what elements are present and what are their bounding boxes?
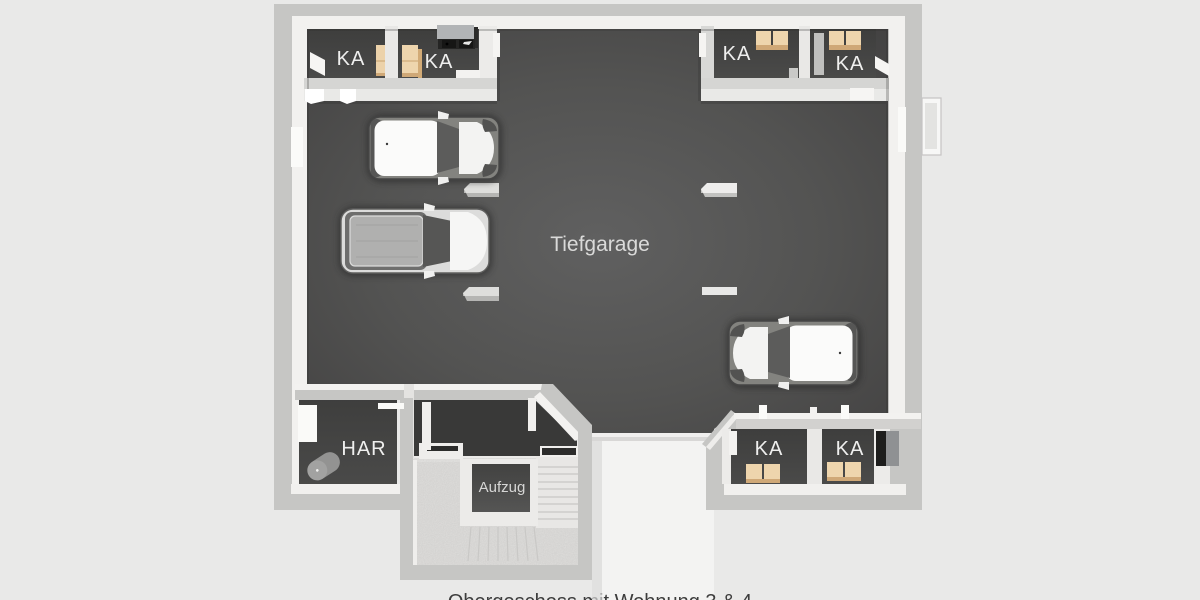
svg-text:KA: KA [723, 43, 752, 65]
svg-text:KA: KA [836, 53, 865, 75]
svg-text:Tiefgarage: Tiefgarage [550, 233, 650, 256]
svg-text:KA: KA [836, 438, 865, 460]
svg-text:Aufzug: Aufzug [479, 479, 526, 496]
svg-text:HAR: HAR [341, 438, 386, 460]
svg-text:KA: KA [337, 48, 366, 70]
svg-text:KA: KA [425, 51, 454, 73]
svg-text:KA: KA [755, 438, 784, 460]
